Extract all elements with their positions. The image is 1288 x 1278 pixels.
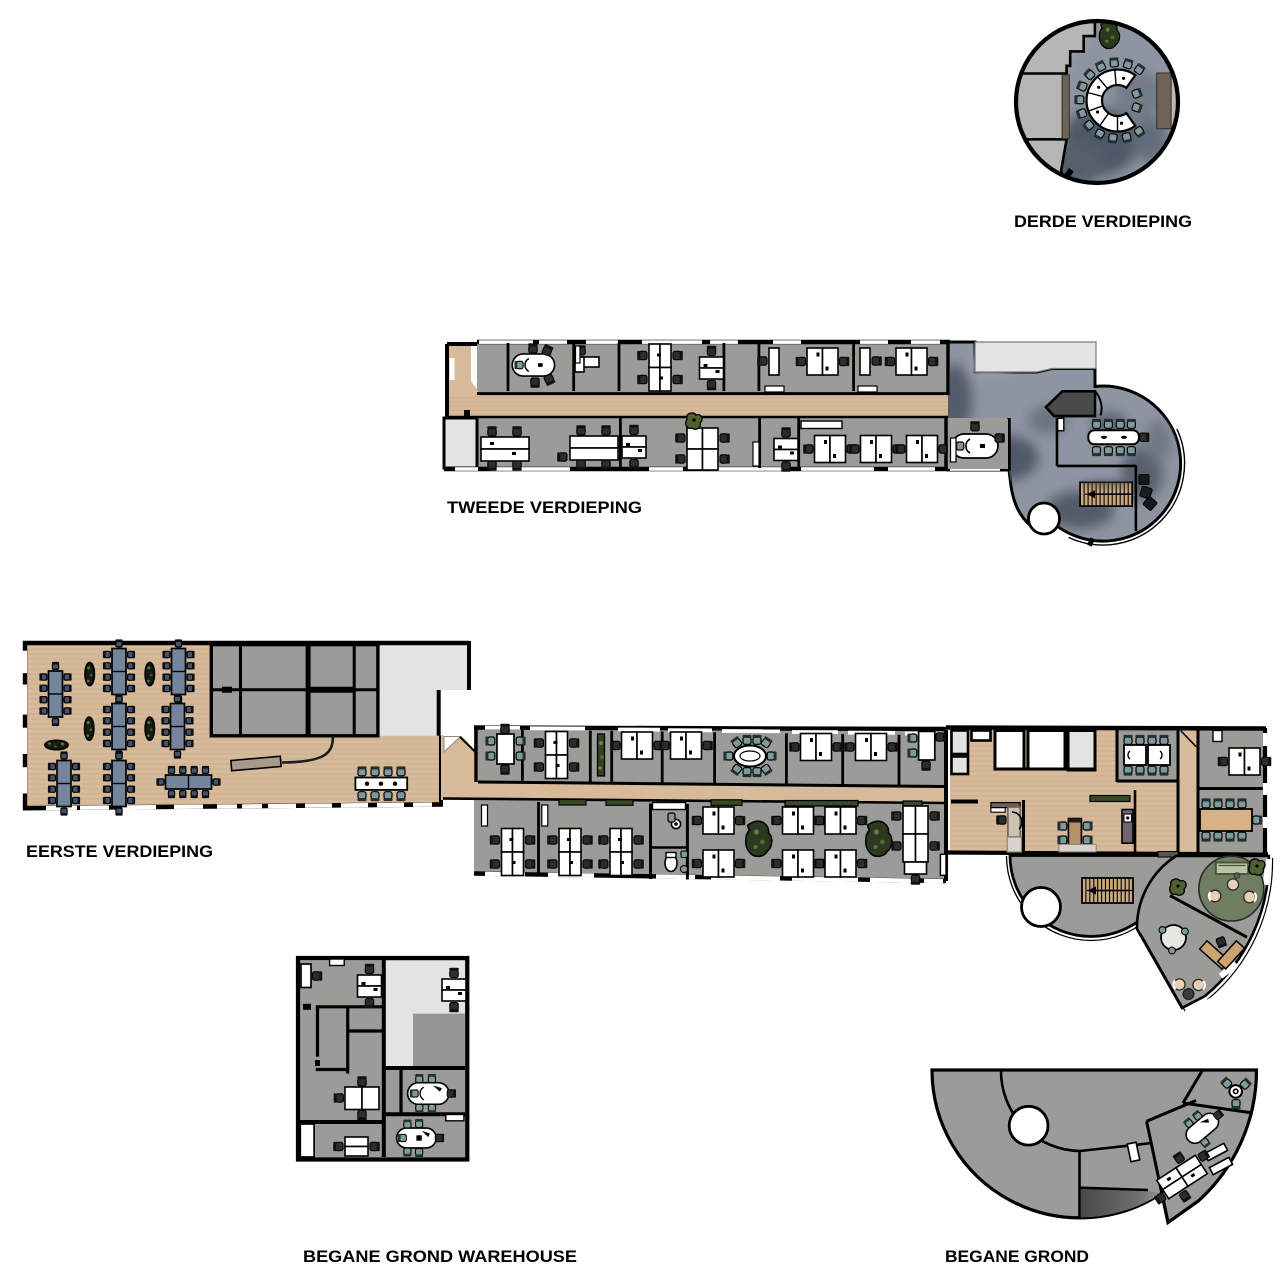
svg-text:DERDE VERDIEPING: DERDE VERDIEPING [1014,212,1192,231]
svg-text:BEGANE GROND WAREHOUSE: BEGANE GROND WAREHOUSE [303,1247,577,1266]
svg-text:EERSTE VERDIEPING: EERSTE VERDIEPING [26,842,213,861]
svg-text:BEGANE GROND: BEGANE GROND [945,1247,1089,1266]
svg-text:TWEEDE VERDIEPING: TWEEDE VERDIEPING [447,498,642,517]
